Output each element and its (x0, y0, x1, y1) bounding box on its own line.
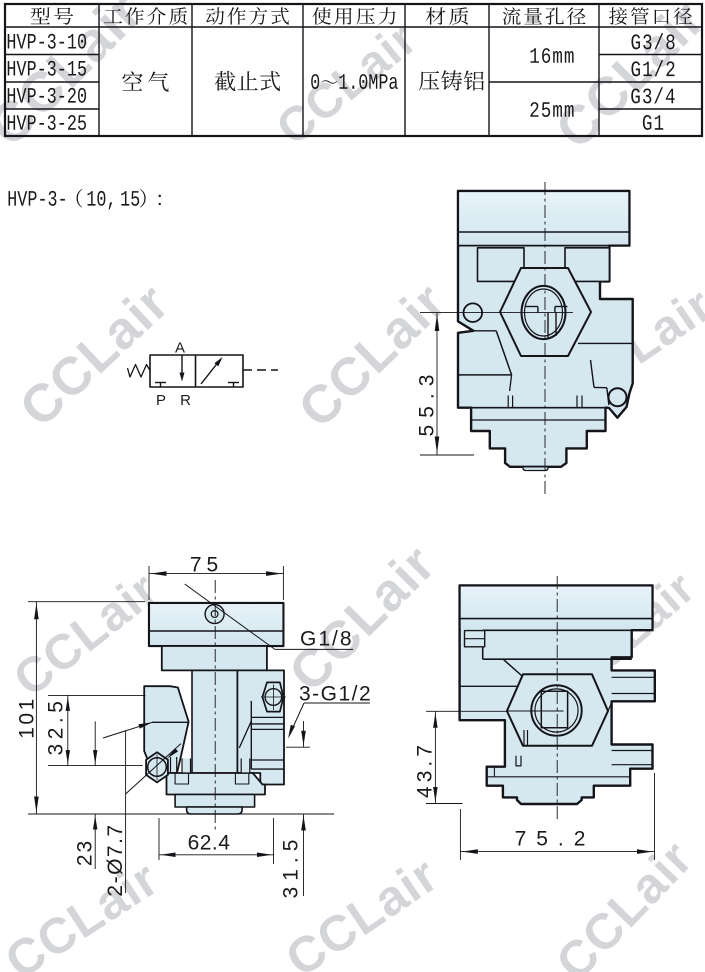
svg-text:2-Ø7.7: 2-Ø7.7 (104, 823, 127, 896)
svg-text:G1/8: G1/8 (300, 628, 354, 651)
svg-text:32.5: 32.5 (45, 697, 68, 756)
svg-text:CCLair: CCLair (267, 12, 427, 156)
svg-text:23: 23 (74, 839, 97, 866)
svg-text:R: R (180, 392, 191, 409)
svg-text:CCLair: CCLair (4, 562, 169, 707)
svg-text:75: 75 (190, 554, 223, 577)
svg-text:75.2: 75.2 (515, 828, 596, 851)
svg-text:CCLair: CCLair (545, 830, 703, 972)
svg-text:43.7: 43.7 (414, 741, 437, 798)
svg-text:P: P (156, 392, 166, 409)
svg-text:A: A (175, 340, 185, 357)
svg-text:CCLair: CCLair (0, 850, 168, 972)
svg-text:101: 101 (16, 696, 39, 739)
svg-text:62.4: 62.4 (188, 832, 231, 855)
svg-text:31.5: 31.5 (280, 834, 303, 899)
svg-text:CCLair: CCLair (278, 534, 447, 703)
svg-text:CCLair: CCLair (0, 0, 154, 158)
svg-text:3-G1/2: 3-G1/2 (299, 682, 372, 705)
svg-text:55.3: 55.3 (416, 368, 439, 437)
